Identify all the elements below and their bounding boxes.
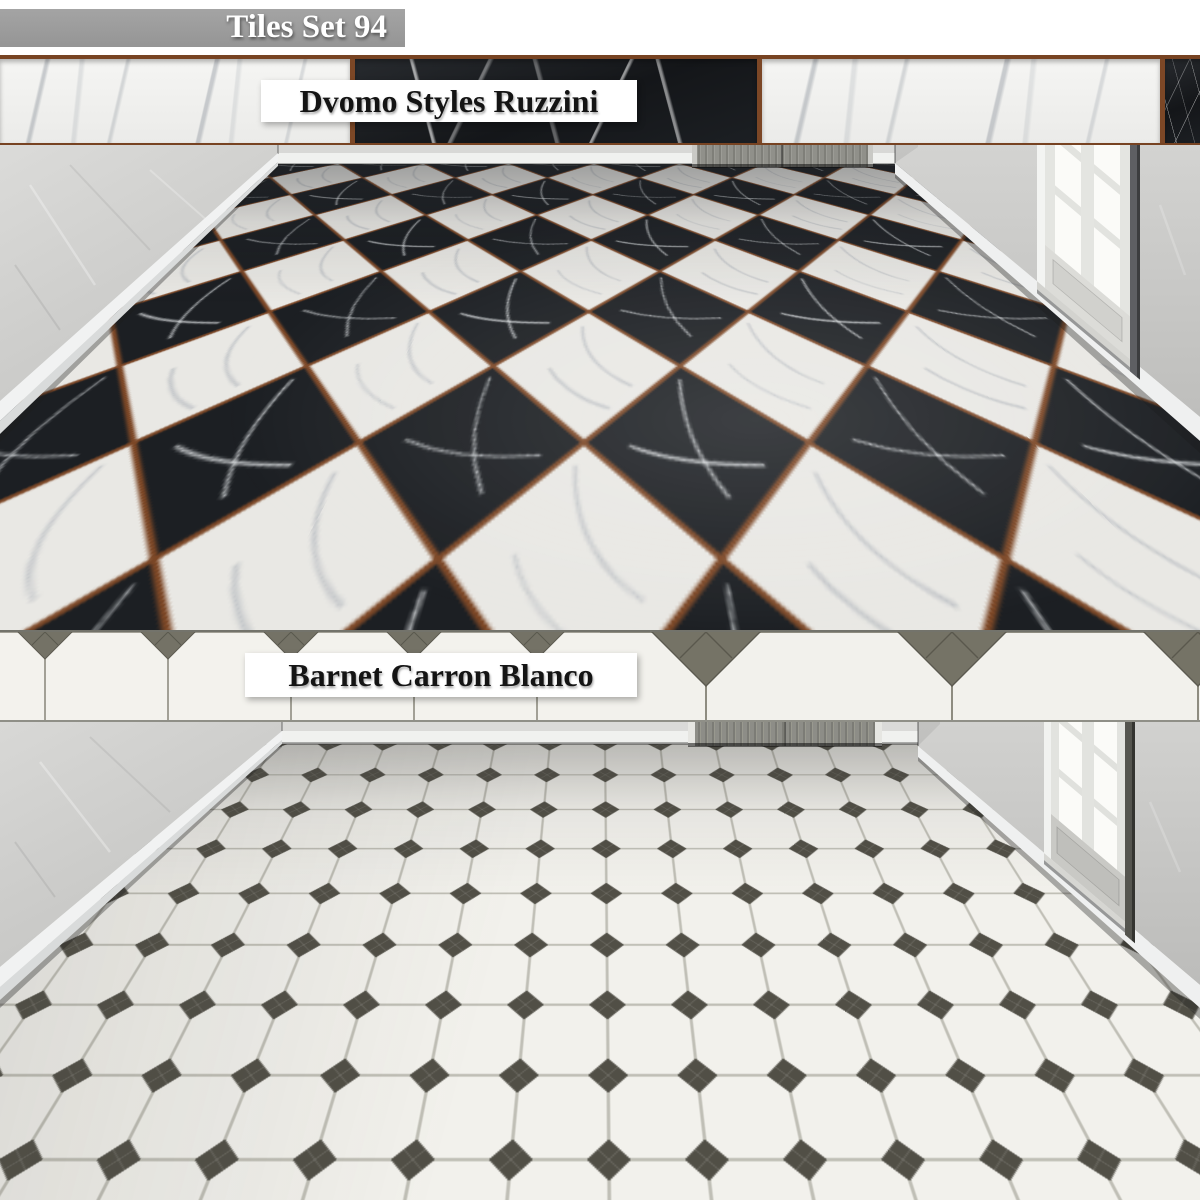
left-wall [0, 722, 282, 967]
room-render-ruzzini [0, 145, 1200, 630]
slatted-door [688, 722, 882, 747]
tile-set-showcase: Dvomo Styles Ruzzini [0, 0, 1200, 1200]
product-label-ruzzini: Dvomo Styles Ruzzini [261, 80, 637, 122]
product-name: Barnet Carron Blanco [288, 657, 593, 694]
title-banner: Tiles Set 94 [0, 9, 405, 47]
swatch-black-marble-tile [1165, 59, 1200, 143]
room-render-barnet [0, 722, 1200, 1200]
title-text: Tiles Set 94 [226, 9, 387, 45]
swatch-white-marble-tile [762, 59, 1160, 143]
product-name: Dvomo Styles Ruzzini [300, 83, 599, 120]
product-label-barnet: Barnet Carron Blanco [245, 653, 637, 697]
room-walls-barnet [0, 722, 1200, 1200]
room-walls-ruzzini [0, 145, 1200, 630]
slatted-door [692, 145, 873, 168]
swatch-octagon-large [600, 632, 1200, 720]
